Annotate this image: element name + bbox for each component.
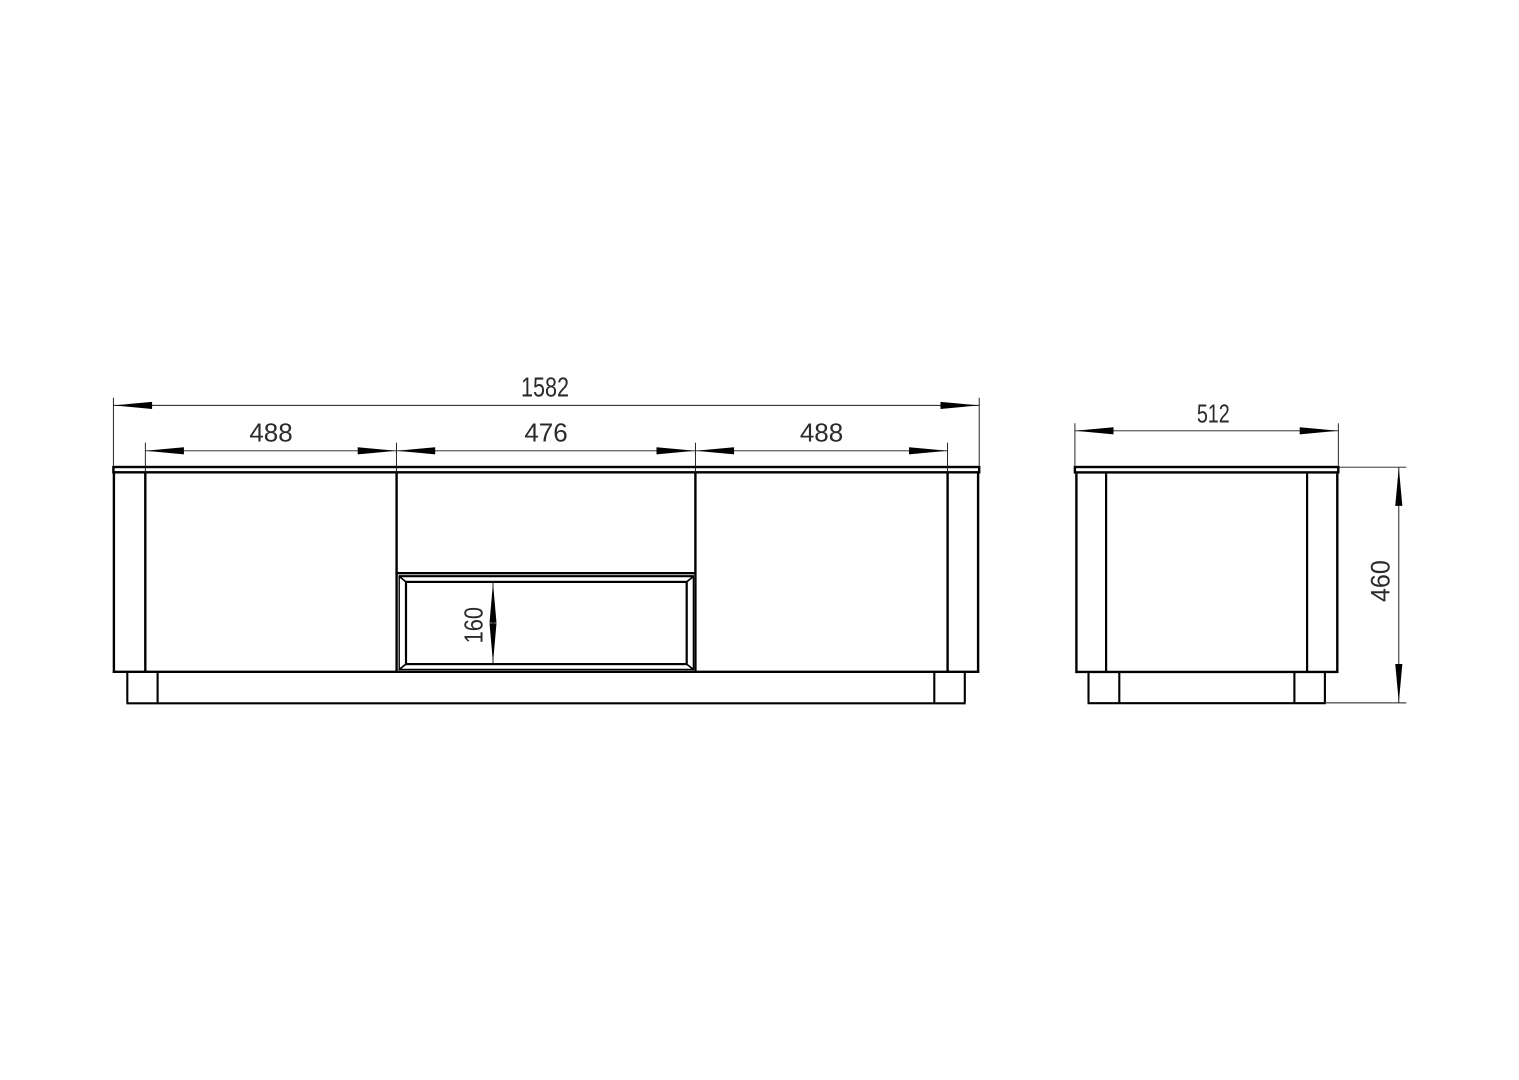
svg-text:488: 488 [249, 418, 292, 448]
svg-text:476: 476 [524, 418, 567, 448]
svg-text:512: 512 [1197, 399, 1230, 428]
svg-text:460: 460 [1365, 560, 1396, 602]
svg-text:488: 488 [800, 418, 843, 448]
svg-text:1582: 1582 [521, 373, 569, 403]
svg-text:160: 160 [460, 607, 489, 643]
